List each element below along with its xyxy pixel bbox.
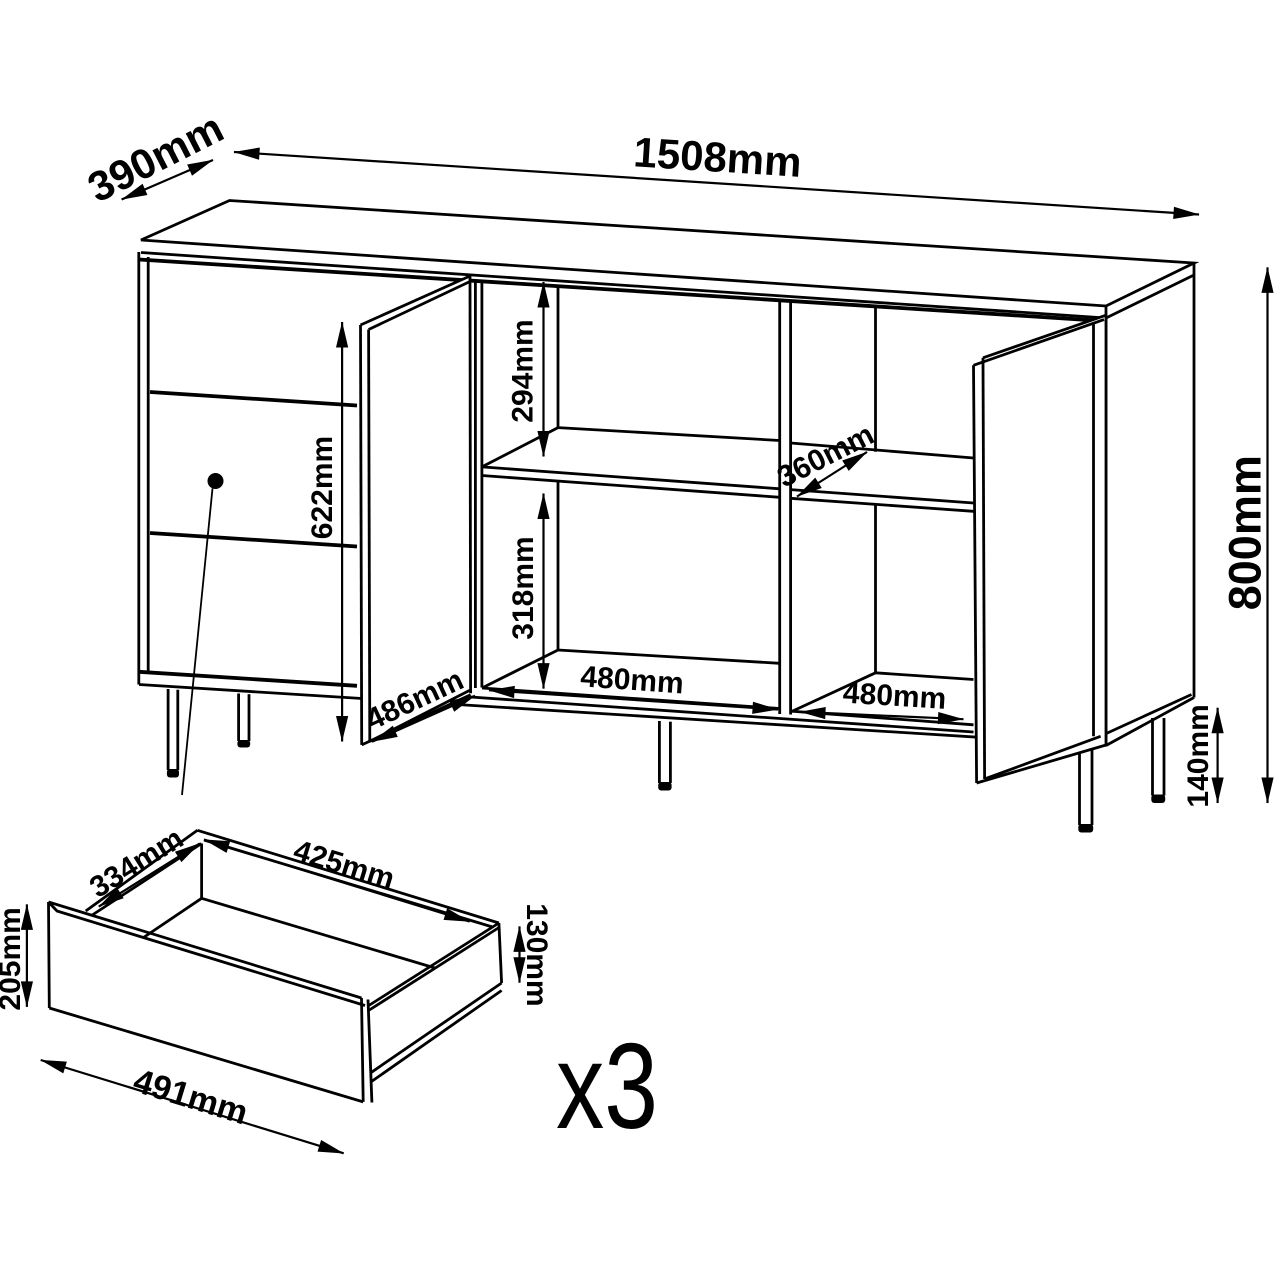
svg-text:318mm: 318mm xyxy=(507,536,540,639)
svg-text:491mm: 491mm xyxy=(129,1062,252,1133)
svg-text:294mm: 294mm xyxy=(507,319,540,422)
svg-text:360mm: 360mm xyxy=(772,418,879,494)
svg-text:622mm: 622mm xyxy=(306,436,339,539)
svg-text:480mm: 480mm xyxy=(842,677,947,716)
svg-text:1508mm: 1508mm xyxy=(632,128,803,185)
svg-text:390mm: 390mm xyxy=(80,104,230,212)
svg-text:140mm: 140mm xyxy=(1182,704,1215,807)
svg-text:800mm: 800mm xyxy=(1219,455,1270,610)
svg-text:205mm: 205mm xyxy=(0,907,27,1010)
svg-text:x3: x3 xyxy=(556,1018,658,1154)
svg-text:130mm: 130mm xyxy=(520,903,553,1006)
